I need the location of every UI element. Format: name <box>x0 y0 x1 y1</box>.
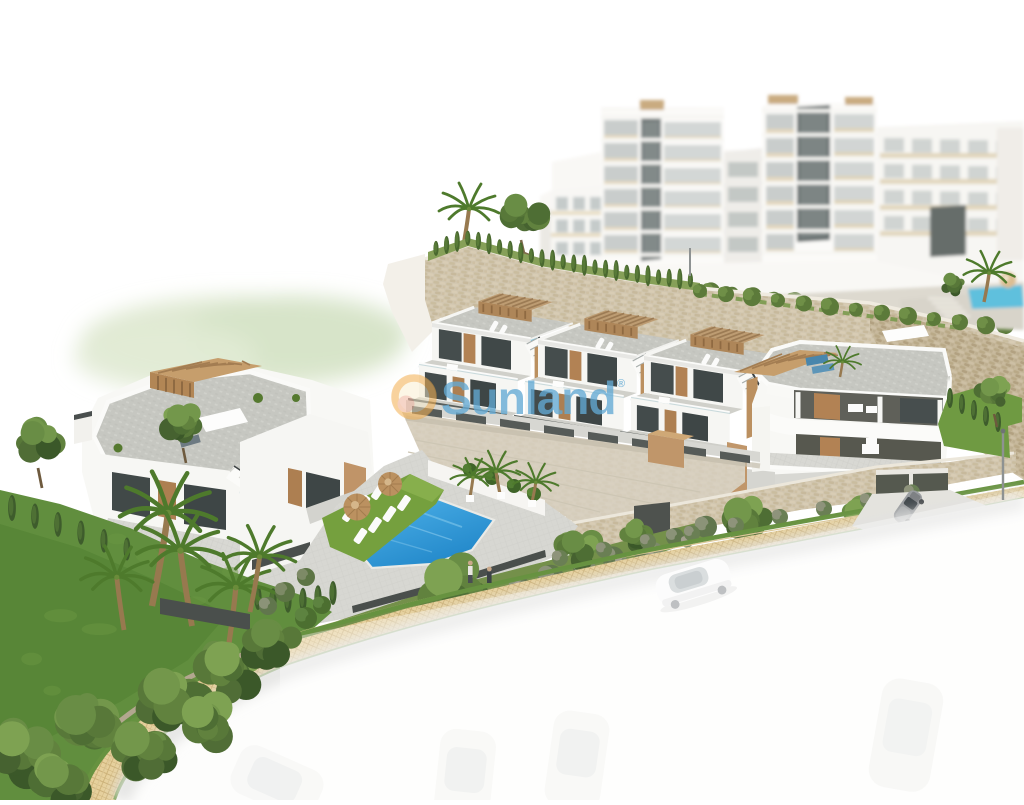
svg-text:®: ® <box>617 378 625 390</box>
svg-text:Sunland: Sunland <box>441 372 615 424</box>
